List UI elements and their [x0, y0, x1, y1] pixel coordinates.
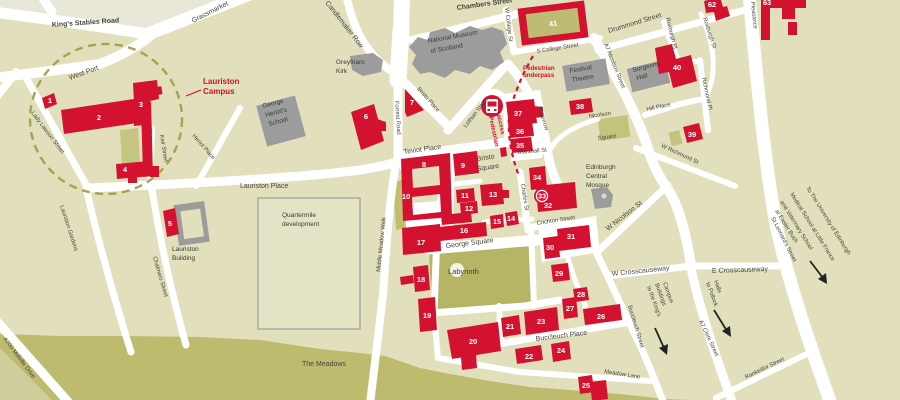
svg-text:13: 13	[489, 190, 497, 199]
svg-text:26: 26	[597, 312, 605, 321]
svg-text:62: 62	[708, 0, 716, 9]
svg-text:37: 37	[514, 109, 522, 118]
svg-text:Central: Central	[586, 173, 608, 180]
svg-text:12: 12	[465, 204, 473, 213]
svg-text:32: 32	[544, 201, 552, 210]
svg-text:21: 21	[506, 322, 514, 331]
svg-text:25: 25	[582, 381, 590, 390]
svg-text:3: 3	[139, 100, 143, 109]
svg-text:Building: Building	[172, 255, 196, 262]
svg-text:Labyrinth: Labyrinth	[448, 267, 479, 276]
svg-text:15: 15	[493, 217, 501, 226]
svg-text:6: 6	[364, 112, 368, 121]
svg-text:development: development	[282, 221, 319, 228]
svg-text:11: 11	[461, 191, 469, 200]
svg-text:Pedestrian: Pedestrian	[523, 65, 555, 72]
svg-text:27: 27	[566, 304, 574, 313]
svg-text:63: 63	[763, 0, 771, 7]
svg-text:36: 36	[516, 127, 524, 136]
svg-text:Lauriston Place: Lauriston Place	[240, 183, 288, 190]
svg-text:Campus: Campus	[203, 87, 235, 96]
svg-text:38: 38	[576, 102, 584, 111]
svg-text:23: 23	[537, 317, 545, 326]
svg-text:8: 8	[422, 160, 426, 169]
svg-text:41: 41	[548, 19, 557, 29]
svg-text:30: 30	[546, 243, 554, 252]
svg-text:10: 10	[402, 192, 410, 201]
svg-text:Kirk: Kirk	[336, 68, 348, 75]
svg-text:34: 34	[533, 173, 542, 182]
svg-text:The Meadows: The Meadows	[302, 361, 346, 368]
svg-text:9: 9	[461, 161, 465, 170]
svg-text:Edinburgh: Edinburgh	[586, 164, 616, 171]
svg-text:underpass: underpass	[523, 72, 555, 79]
svg-text:19: 19	[423, 311, 431, 320]
svg-text:33: 33	[538, 192, 546, 201]
svg-text:40: 40	[673, 63, 681, 72]
svg-text:Lauriston: Lauriston	[172, 246, 199, 253]
svg-text:18: 18	[417, 275, 425, 284]
svg-text:39: 39	[688, 130, 696, 139]
svg-text:14: 14	[507, 214, 516, 223]
svg-text:Greyfriars: Greyfriars	[336, 59, 365, 66]
svg-text:24: 24	[557, 346, 566, 355]
svg-text:Mosque: Mosque	[586, 182, 610, 189]
svg-text:1: 1	[48, 96, 52, 105]
svg-text:16: 16	[460, 226, 468, 235]
svg-text:5: 5	[168, 219, 172, 228]
svg-text:28: 28	[577, 290, 585, 299]
svg-text:7: 7	[410, 98, 414, 107]
svg-text:20: 20	[469, 337, 477, 346]
svg-text:Quartermile: Quartermile	[282, 212, 316, 219]
svg-text:31: 31	[567, 232, 575, 241]
svg-text:2: 2	[97, 113, 101, 122]
svg-text:Lauriston: Lauriston	[203, 77, 240, 86]
svg-text:29: 29	[555, 269, 563, 278]
svg-text:17: 17	[417, 238, 425, 247]
svg-text:22: 22	[525, 352, 533, 361]
